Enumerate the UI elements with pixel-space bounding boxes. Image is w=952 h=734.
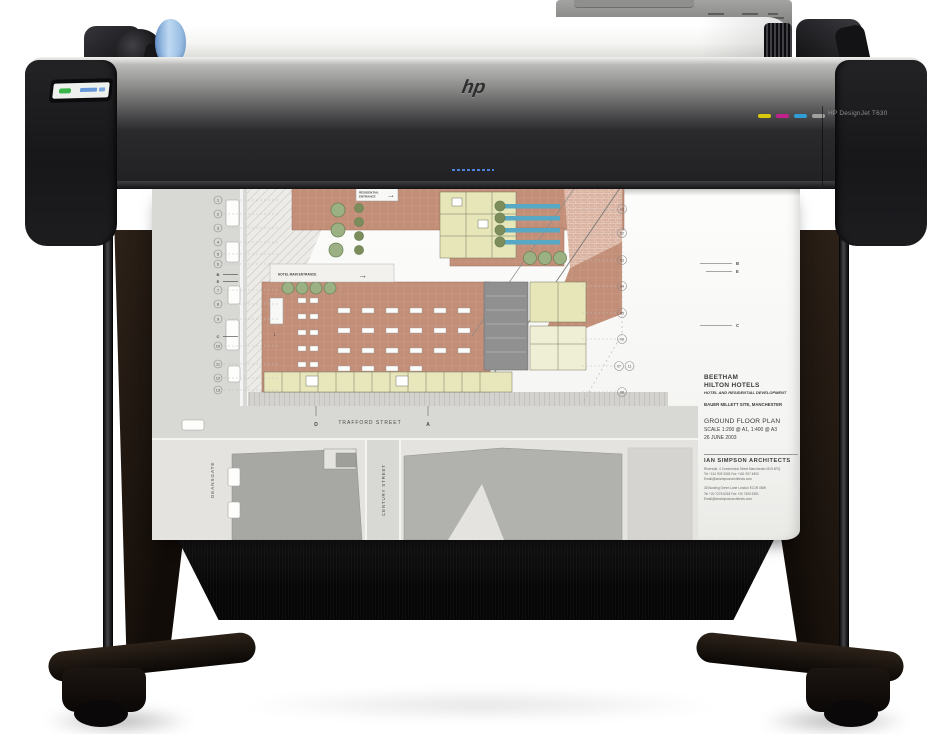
svg-text:D: D: [314, 422, 318, 428]
deansgate-label: DEANSGATE: [210, 462, 215, 498]
project-subtitle: HOTEL AND RESIDENTIAL DEVELOPMENT: [704, 390, 798, 395]
control-panel-screen: [52, 82, 110, 99]
printer-product-photo: RESIDENTIAL ENTRANCE → HOTEL MAIN ENTRAN…: [0, 0, 952, 734]
paper-exit-slot: [117, 181, 835, 189]
front-accent-dashes: [452, 169, 494, 171]
power-status-indicator: [59, 88, 72, 93]
magenta-ink-mark: [776, 114, 789, 118]
floor-plan: RESIDENTIAL ENTRANCE → HOTEL MAIN ENTRAN…: [152, 186, 800, 540]
trafford-street-label: TRAFFORD STREET: [338, 420, 401, 426]
svg-text:03: 03: [620, 258, 624, 262]
arrow-right-icon: →: [358, 270, 367, 280]
front-panel-seam: [822, 106, 823, 186]
cyan-ink-mark: [794, 114, 807, 118]
wheel-right: [824, 700, 878, 727]
yellow-ink-mark: [758, 114, 771, 118]
site-name: BAUER MILLETT SITE, MANCHESTER: [704, 402, 798, 407]
svg-text:05: 05: [620, 311, 624, 315]
stand-rod-left: [103, 234, 113, 648]
stand-rod-right: [839, 234, 849, 648]
client-name: HILTON HOTELS: [704, 382, 798, 389]
model-label: HP DesignJet T630: [828, 110, 922, 117]
architect-firm: IAN SIMPSON ARCHITECTS: [704, 454, 798, 464]
hotel-entrance-label: HOTEL MAIN ENTRANCE: [278, 273, 316, 277]
svg-text:12: 12: [216, 375, 221, 380]
arrow-down-icon: ↓: [273, 331, 277, 338]
svg-text:E: E: [736, 269, 739, 274]
screen-text-bar: [80, 88, 97, 92]
century-street-label: CENTURY STREET: [381, 464, 386, 516]
svg-text:13: 13: [216, 387, 221, 392]
svg-text:04: 04: [620, 284, 624, 288]
gray-ink-mark: [812, 114, 825, 118]
tray-handle-notch: [574, 0, 694, 8]
printed-sheet: RESIDENTIAL ENTRANCE → HOTEL MAIN ENTRAN…: [152, 186, 800, 540]
svg-text:11: 11: [628, 364, 632, 368]
svg-text:C: C: [736, 323, 739, 328]
svg-text:06: 06: [620, 337, 624, 341]
grid-edge-letters: B E C: [700, 261, 739, 328]
svg-text:A: A: [426, 422, 430, 428]
right-side-pod: [835, 60, 927, 246]
arrow-right-icon: →: [387, 191, 395, 200]
drawing-scale: SCALE 1:200 @ A1, 1:400 @ A3: [704, 427, 798, 433]
title-block: BEETHAM HILTON HOTELS HOTEL AND RESIDENT…: [704, 374, 798, 502]
firm-address-1: Riverside, 4 Commercial Street Mancheste…: [704, 467, 798, 482]
wheel-left: [74, 700, 128, 727]
svg-text:E: E: [217, 279, 220, 284]
svg-text:08: 08: [620, 390, 624, 394]
drawing-date: 26 JUNE 2003: [704, 435, 798, 441]
project-name: BEETHAM: [704, 374, 798, 381]
svg-text:07: 07: [617, 364, 621, 368]
screen-text-bar: [99, 87, 105, 91]
firm-address-2: 36 Bowling Green Lane London EC1R 0BW Te…: [704, 486, 798, 501]
svg-text:B: B: [736, 261, 739, 266]
hp-logo: hp: [460, 77, 487, 99]
drawing-title: GROUND FLOOR PLAN: [704, 418, 798, 425]
svg-text:10: 10: [216, 343, 221, 348]
svg-text:B: B: [217, 272, 220, 277]
svg-text:C: C: [217, 334, 220, 339]
floor-shadow: [230, 690, 730, 720]
residential-entrance-label: ENTRANCE: [359, 195, 376, 199]
control-panel-display: [49, 78, 114, 103]
svg-text:02: 02: [620, 231, 624, 235]
svg-text:01: 01: [620, 207, 624, 211]
